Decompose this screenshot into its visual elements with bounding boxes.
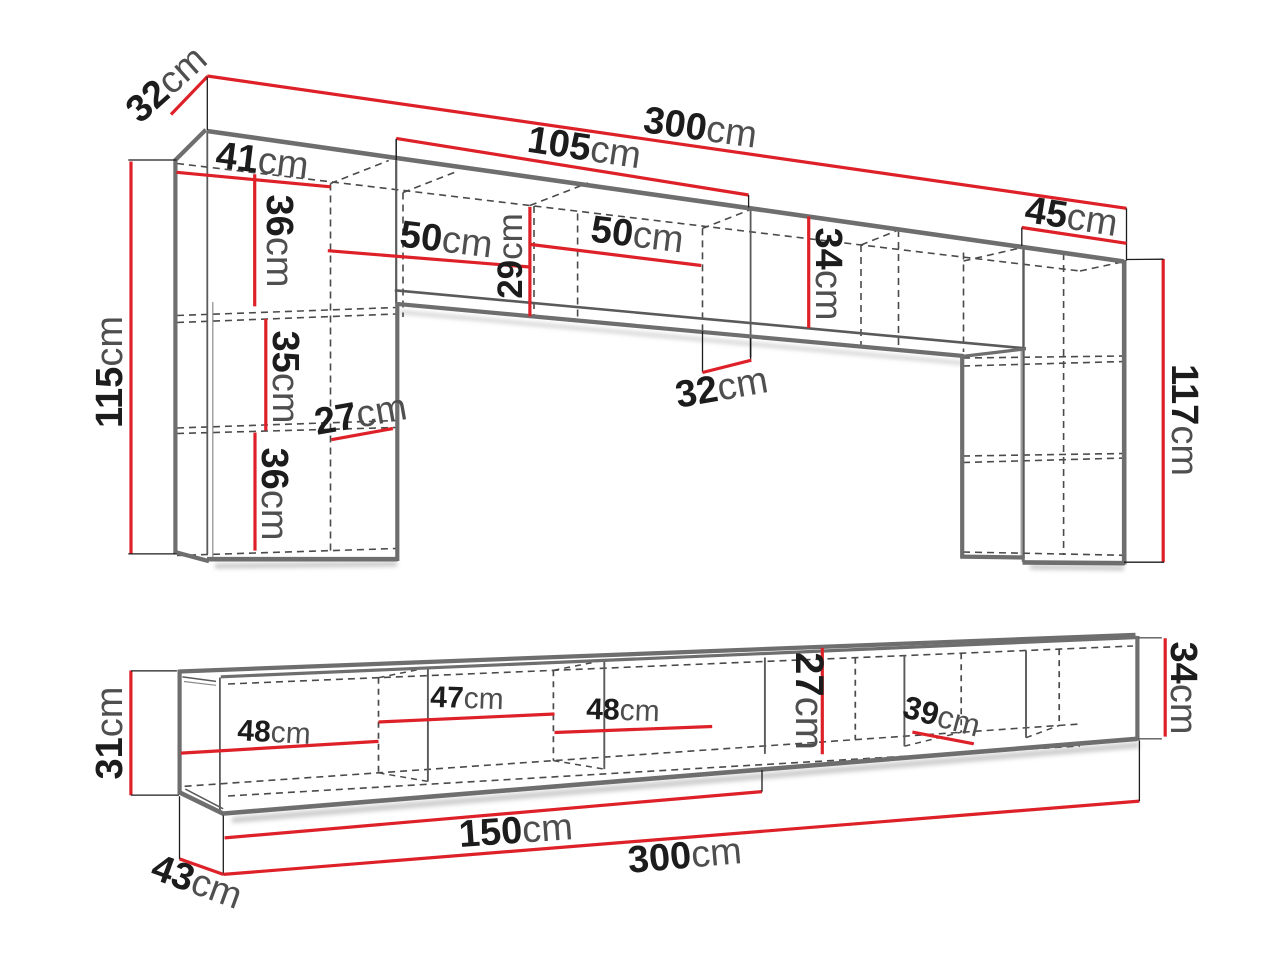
svg-text:35cm: 35cm: [264, 331, 306, 424]
svg-text:27cm: 27cm: [787, 652, 831, 750]
svg-text:36cm: 36cm: [253, 448, 295, 541]
svg-text:29cm: 29cm: [491, 213, 530, 299]
svg-text:34cm: 34cm: [1162, 642, 1204, 735]
svg-text:48cm: 48cm: [586, 693, 660, 729]
svg-text:36cm: 36cm: [258, 195, 300, 288]
svg-text:34cm: 34cm: [807, 228, 849, 321]
svg-text:47cm: 47cm: [430, 681, 504, 717]
svg-text:31cm: 31cm: [89, 687, 131, 780]
svg-text:117cm: 117cm: [1163, 364, 1205, 476]
svg-text:48cm: 48cm: [237, 714, 312, 751]
svg-text:115cm: 115cm: [89, 316, 131, 428]
